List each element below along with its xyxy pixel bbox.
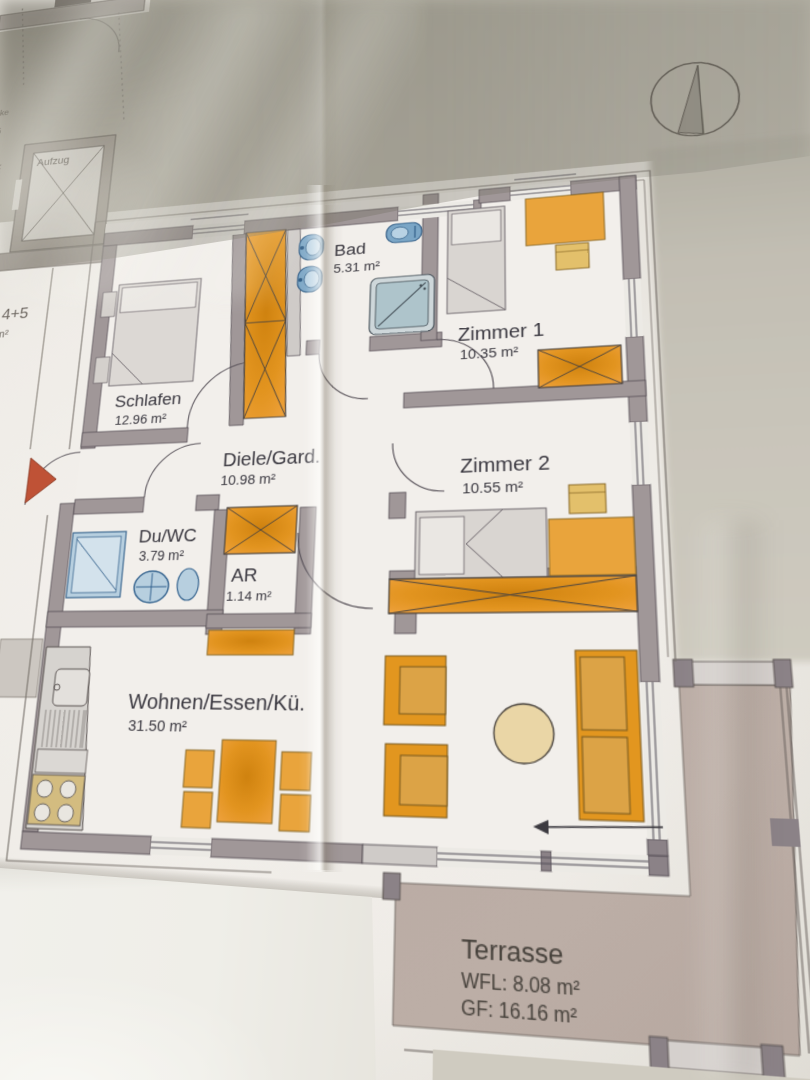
svg-text:Diele/Gard.: Diele/Gard.	[222, 447, 321, 471]
svg-text:H 4+5: H 4+5	[0, 304, 30, 325]
svg-text:Schlafen: Schlafen	[114, 389, 182, 412]
svg-text:Decke: Decke	[0, 107, 10, 119]
svg-text:BK: BK	[0, 163, 4, 176]
svg-text:10.55 m²: 10.55 m²	[462, 480, 523, 497]
svg-text:12.96 m²: 12.96 m²	[114, 412, 167, 428]
svg-text:AR: AR	[231, 565, 259, 587]
svg-text:Du/WC: Du/WC	[138, 525, 198, 547]
svg-text:Wohnen/Essen/Kü.: Wohnen/Essen/Kü.	[127, 690, 306, 716]
svg-text:1.14 m²: 1.14 m²	[225, 589, 272, 605]
svg-text:Terrasse: Terrasse	[461, 932, 564, 970]
svg-text:OG: OG	[0, 126, 2, 138]
svg-text:Bad: Bad	[334, 240, 366, 261]
svg-text:10.98 m²: 10.98 m²	[220, 472, 276, 488]
svg-text:3.79 m²: 3.79 m²	[138, 549, 185, 565]
svg-text:31.50 m²: 31.50 m²	[127, 717, 187, 735]
svg-text:Zimmer 2: Zimmer 2	[460, 453, 550, 478]
